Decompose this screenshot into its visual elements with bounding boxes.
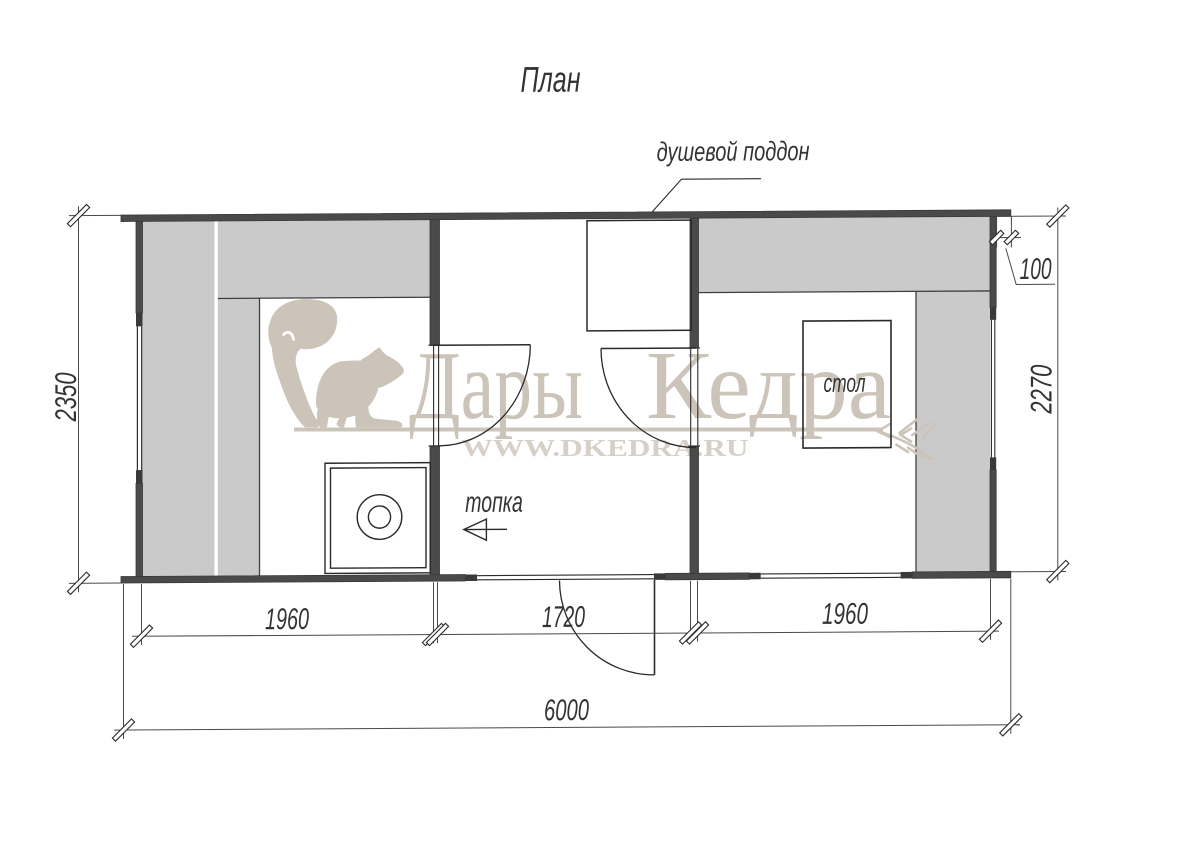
svg-text:WWW.DKEDRA.RU: WWW.DKEDRA.RU bbox=[462, 436, 749, 462]
svg-text:2270: 2270 bbox=[1026, 364, 1059, 414]
svg-text:2350: 2350 bbox=[50, 372, 83, 422]
svg-text:1720: 1720 bbox=[542, 601, 585, 634]
svg-text:1960: 1960 bbox=[265, 603, 309, 636]
svg-text:6000: 6000 bbox=[544, 694, 589, 727]
svg-text:стол: стол bbox=[824, 368, 866, 398]
svg-text:душевой поддон: душевой поддон bbox=[657, 136, 810, 167]
svg-text:топка: топка bbox=[465, 487, 523, 519]
svg-text:100: 100 bbox=[1020, 253, 1052, 286]
svg-text:1960: 1960 bbox=[822, 598, 868, 631]
svg-text:План: План bbox=[521, 59, 581, 100]
